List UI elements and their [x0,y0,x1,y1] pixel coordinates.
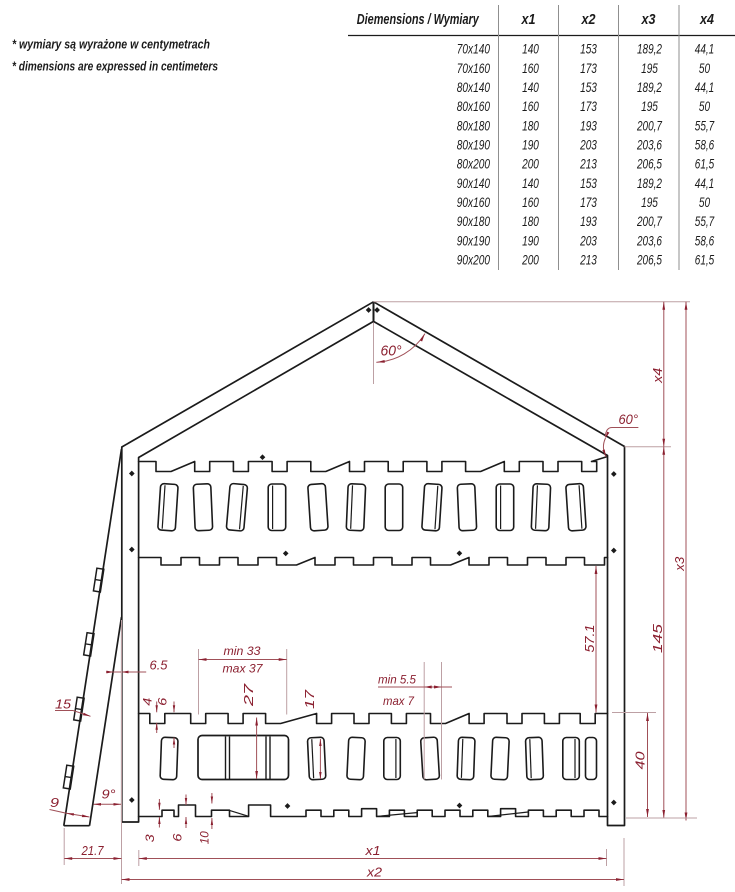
svg-text:193: 193 [580,118,597,133]
svg-text:70x160: 70x160 [457,61,491,76]
svg-text:173: 173 [580,99,597,114]
svg-text:21.7: 21.7 [81,843,105,858]
svg-text:80x190: 80x190 [457,138,491,153]
svg-text:90x200: 90x200 [457,253,491,268]
svg-text:189,2: 189,2 [637,42,662,57]
svg-text:195: 195 [641,61,658,76]
svg-text:44,1: 44,1 [695,176,714,191]
svg-text:206,5: 206,5 [636,157,662,172]
svg-text:200: 200 [521,253,539,268]
svg-text:max 37: max 37 [223,662,264,676]
svg-text:189,2: 189,2 [637,176,662,191]
svg-text:58,6: 58,6 [695,233,715,248]
svg-text:50: 50 [699,99,711,114]
svg-text:50: 50 [699,195,711,210]
svg-text:x3: x3 [641,12,656,28]
svg-text:3: 3 [143,834,157,842]
svg-text:max 7: max 7 [383,694,415,708]
svg-text:213: 213 [579,157,597,172]
svg-text:190: 190 [522,233,539,248]
svg-text:90x160: 90x160 [457,195,491,210]
svg-text:90x180: 90x180 [457,214,491,229]
svg-text:x3: x3 [673,557,687,572]
svg-text:min 5.5: min 5.5 [378,673,416,687]
svg-text:173: 173 [580,61,597,76]
svg-text:80x200: 80x200 [457,157,491,172]
svg-text:190: 190 [522,138,539,153]
svg-text:x4: x4 [699,12,714,28]
svg-text:213: 213 [579,253,597,268]
svg-text:15: 15 [55,698,71,712]
svg-text:203: 203 [579,138,597,153]
svg-text:80x160: 80x160 [457,99,491,114]
svg-text:203,6: 203,6 [636,233,662,248]
svg-text:60°: 60° [381,343,402,360]
svg-text:Diemensions / Wymiary: Diemensions / Wymiary [357,11,479,28]
svg-text:193: 193 [580,214,597,229]
svg-text:6: 6 [170,833,184,841]
svg-text:x1: x1 [364,843,380,858]
svg-text:17: 17 [303,689,317,709]
svg-text:55,7: 55,7 [695,118,715,133]
svg-text:200,7: 200,7 [636,214,662,229]
svg-text:9: 9 [50,796,59,810]
svg-text:160: 160 [522,61,539,76]
svg-text:173: 173 [580,195,597,210]
svg-text:9°: 9° [102,788,116,802]
svg-text:200: 200 [521,157,539,172]
svg-text:180: 180 [522,214,539,229]
svg-text:58,6: 58,6 [695,138,715,153]
svg-text:x2: x2 [581,12,596,28]
svg-text:140: 140 [522,176,539,191]
svg-text:206,5: 206,5 [636,253,662,268]
svg-text:x1: x1 [521,12,536,28]
svg-text:195: 195 [641,99,658,114]
svg-text:min 33: min 33 [224,644,261,658]
svg-text:50: 50 [699,61,711,76]
svg-text:189,2: 189,2 [637,80,662,95]
svg-text:140: 140 [522,42,539,57]
svg-text:44,1: 44,1 [695,80,714,95]
svg-text:6.5: 6.5 [150,659,168,673]
svg-text:180: 180 [522,118,539,133]
svg-text:x4: x4 [651,368,665,384]
svg-text:61,5: 61,5 [695,157,715,172]
svg-text:70x140: 70x140 [457,42,491,57]
svg-text:44,1: 44,1 [695,42,714,57]
svg-text:* dimensions are expressed in: * dimensions are expressed in centimeter… [12,59,218,74]
svg-text:145: 145 [650,623,665,653]
svg-text:90x140: 90x140 [457,176,491,191]
svg-text:* wymiary są wyrażone w centym: * wymiary są wyrażone w centymetrach [12,37,210,52]
svg-text:27: 27 [242,682,256,707]
svg-text:153: 153 [580,176,597,191]
svg-text:195: 195 [641,195,658,210]
svg-text:60°: 60° [619,411,639,427]
svg-text:203,6: 203,6 [636,138,662,153]
svg-text:90x190: 90x190 [457,233,491,248]
svg-text:4: 4 [140,697,154,705]
svg-text:57.1: 57.1 [583,625,597,653]
svg-text:153: 153 [580,42,597,57]
svg-text:203: 203 [579,233,597,248]
svg-text:160: 160 [522,99,539,114]
svg-text:40: 40 [633,751,648,770]
svg-text:153: 153 [580,80,597,95]
svg-text:x2: x2 [366,865,383,880]
svg-text:10: 10 [197,831,211,844]
svg-text:200,7: 200,7 [636,118,662,133]
svg-text:6: 6 [156,697,170,705]
svg-text:160: 160 [522,195,539,210]
svg-text:61,5: 61,5 [695,253,715,268]
svg-text:80x180: 80x180 [457,118,491,133]
svg-text:55,7: 55,7 [695,214,715,229]
svg-text:80x140: 80x140 [457,80,491,95]
svg-text:140: 140 [522,80,539,95]
